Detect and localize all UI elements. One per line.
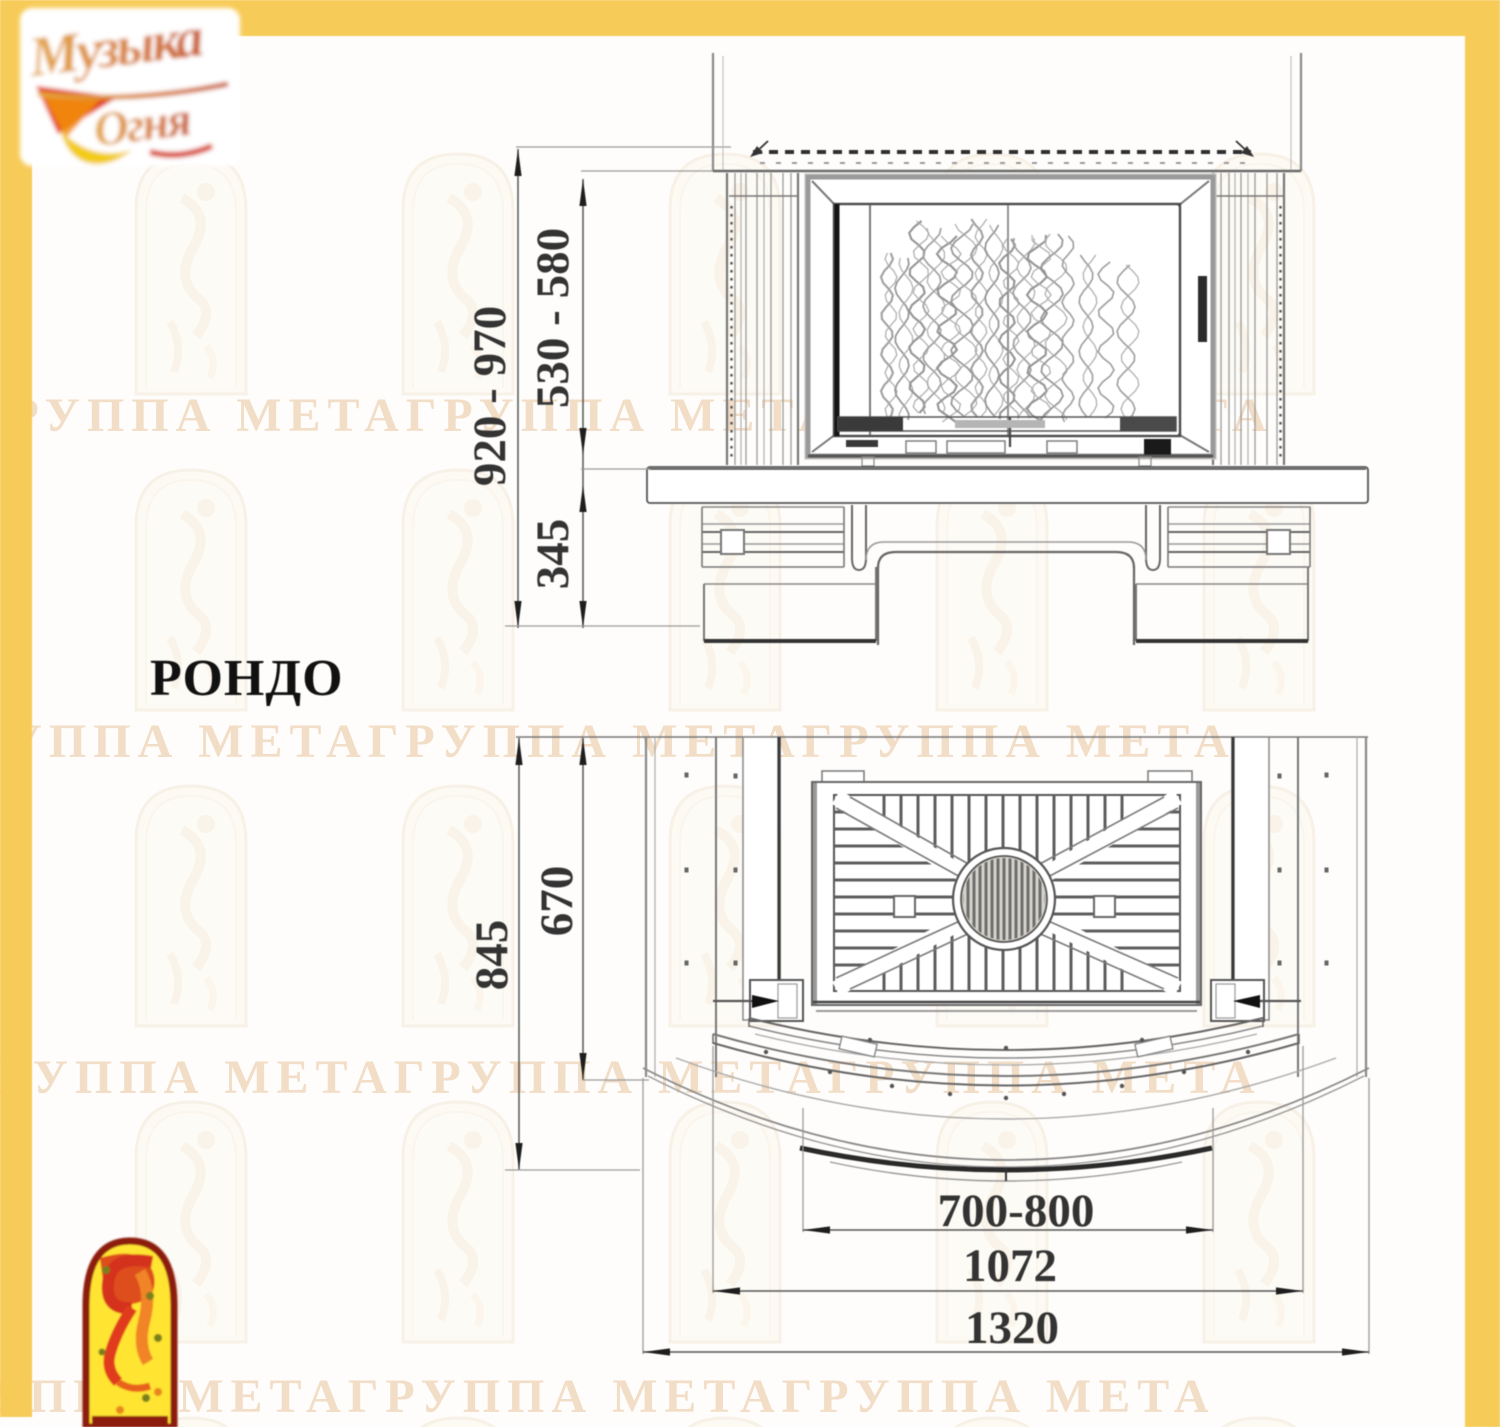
svg-text:345: 345 (527, 519, 579, 590)
svg-text:530 - 580: 530 - 580 (527, 228, 579, 408)
svg-text:920 - 970: 920 - 970 (464, 306, 516, 486)
svg-text:670: 670 (531, 866, 583, 937)
svg-text:700-800: 700-800 (938, 1185, 1095, 1237)
svg-text:1072: 1072 (963, 1240, 1057, 1292)
svg-text:РОНДО: РОНДО (150, 650, 344, 707)
svg-text:1320: 1320 (965, 1302, 1059, 1354)
svg-text:845: 845 (466, 920, 518, 991)
